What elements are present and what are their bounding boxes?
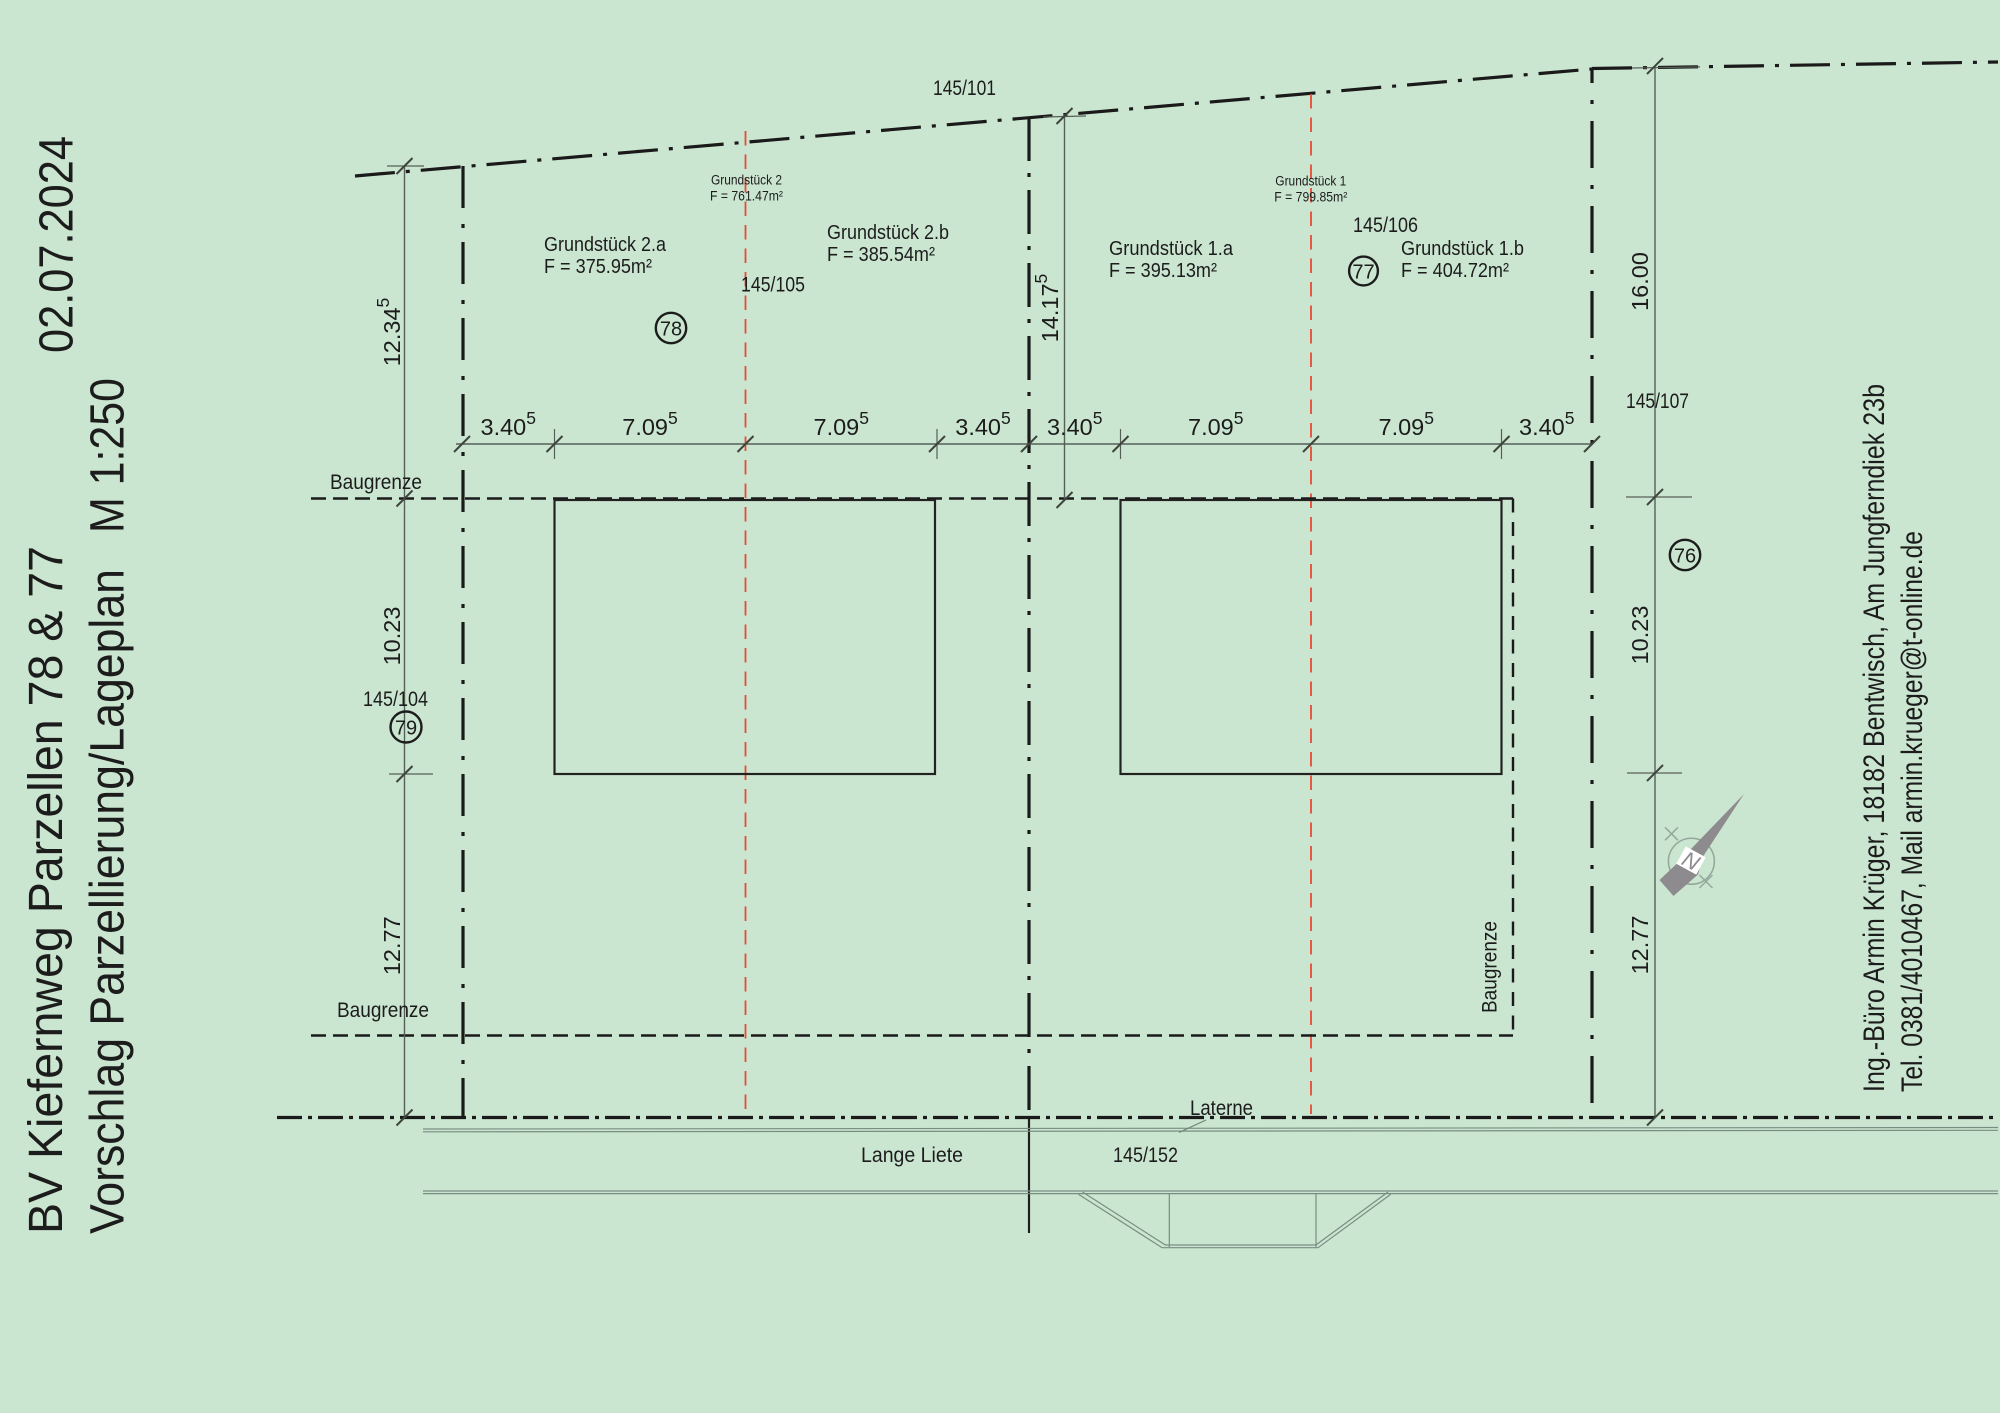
svg-text:10.23: 10.23 xyxy=(379,607,405,666)
svg-text:Baugrenze: Baugrenze xyxy=(330,471,422,494)
svg-text:F = 385.54m²: F = 385.54m² xyxy=(827,243,935,266)
svg-text:BV Kiefernweg Parzellen 78 & 7: BV Kiefernweg Parzellen 78 & 77 xyxy=(19,546,73,1234)
svg-text:F = 375.95m²: F = 375.95m² xyxy=(544,255,652,278)
svg-text:F = 799.85m²: F = 799.85m² xyxy=(1274,190,1347,205)
svg-text:145/104: 145/104 xyxy=(363,688,428,711)
svg-text:Baugrenze: Baugrenze xyxy=(337,999,429,1022)
svg-text:Laterne: Laterne xyxy=(1190,1097,1253,1120)
svg-text:145/101: 145/101 xyxy=(933,77,996,100)
svg-text:79: 79 xyxy=(395,718,417,740)
svg-text:Grundstück 1.b: Grundstück 1.b xyxy=(1401,237,1524,260)
svg-text:Lange Liete: Lange Liete xyxy=(861,1144,963,1167)
svg-text:12.77: 12.77 xyxy=(379,916,405,975)
svg-text:12.77: 12.77 xyxy=(1627,916,1653,975)
svg-text:M 1:250: M 1:250 xyxy=(81,378,135,533)
svg-text:F = 761.47m²: F = 761.47m² xyxy=(710,189,783,204)
svg-text:Baugrenze: Baugrenze xyxy=(1479,921,1502,1013)
svg-text:77: 77 xyxy=(1352,262,1374,284)
svg-text:16.00: 16.00 xyxy=(1627,252,1653,311)
svg-text:F = 395.13m²: F = 395.13m² xyxy=(1109,259,1217,282)
svg-text:Vorschlag Parzellierung/Lagepl: Vorschlag Parzellierung/Lageplan xyxy=(81,569,135,1234)
svg-text:Grundstück 2.a: Grundstück 2.a xyxy=(544,233,667,256)
svg-text:145/107: 145/107 xyxy=(1626,390,1689,413)
svg-text:145/152: 145/152 xyxy=(1113,1144,1178,1167)
svg-text:145/105: 145/105 xyxy=(741,274,805,297)
svg-text:02.07.2024: 02.07.2024 xyxy=(30,136,84,353)
svg-text:Grundstück 2: Grundstück 2 xyxy=(711,173,782,188)
svg-text:76: 76 xyxy=(1674,546,1696,568)
svg-text:Grundstück 1: Grundstück 1 xyxy=(1275,174,1346,189)
svg-text:F = 404.72m²: F = 404.72m² xyxy=(1401,259,1509,282)
svg-text:Ing.-Büro Armin Krüger, 18182: Ing.-Büro Armin Krüger, 18182 Bentwisch,… xyxy=(1858,384,1891,1092)
svg-text:Grundstück 1.a: Grundstück 1.a xyxy=(1109,237,1234,260)
svg-text:Grundstück 2.b: Grundstück 2.b xyxy=(827,221,949,244)
svg-text:Tel. 0381/4010467, Mail armin.: Tel. 0381/4010467, Mail armin.krueger@t-… xyxy=(1896,531,1929,1092)
svg-text:145/106: 145/106 xyxy=(1353,214,1418,237)
svg-text:10.23: 10.23 xyxy=(1627,606,1653,665)
svg-text:78: 78 xyxy=(660,319,682,341)
